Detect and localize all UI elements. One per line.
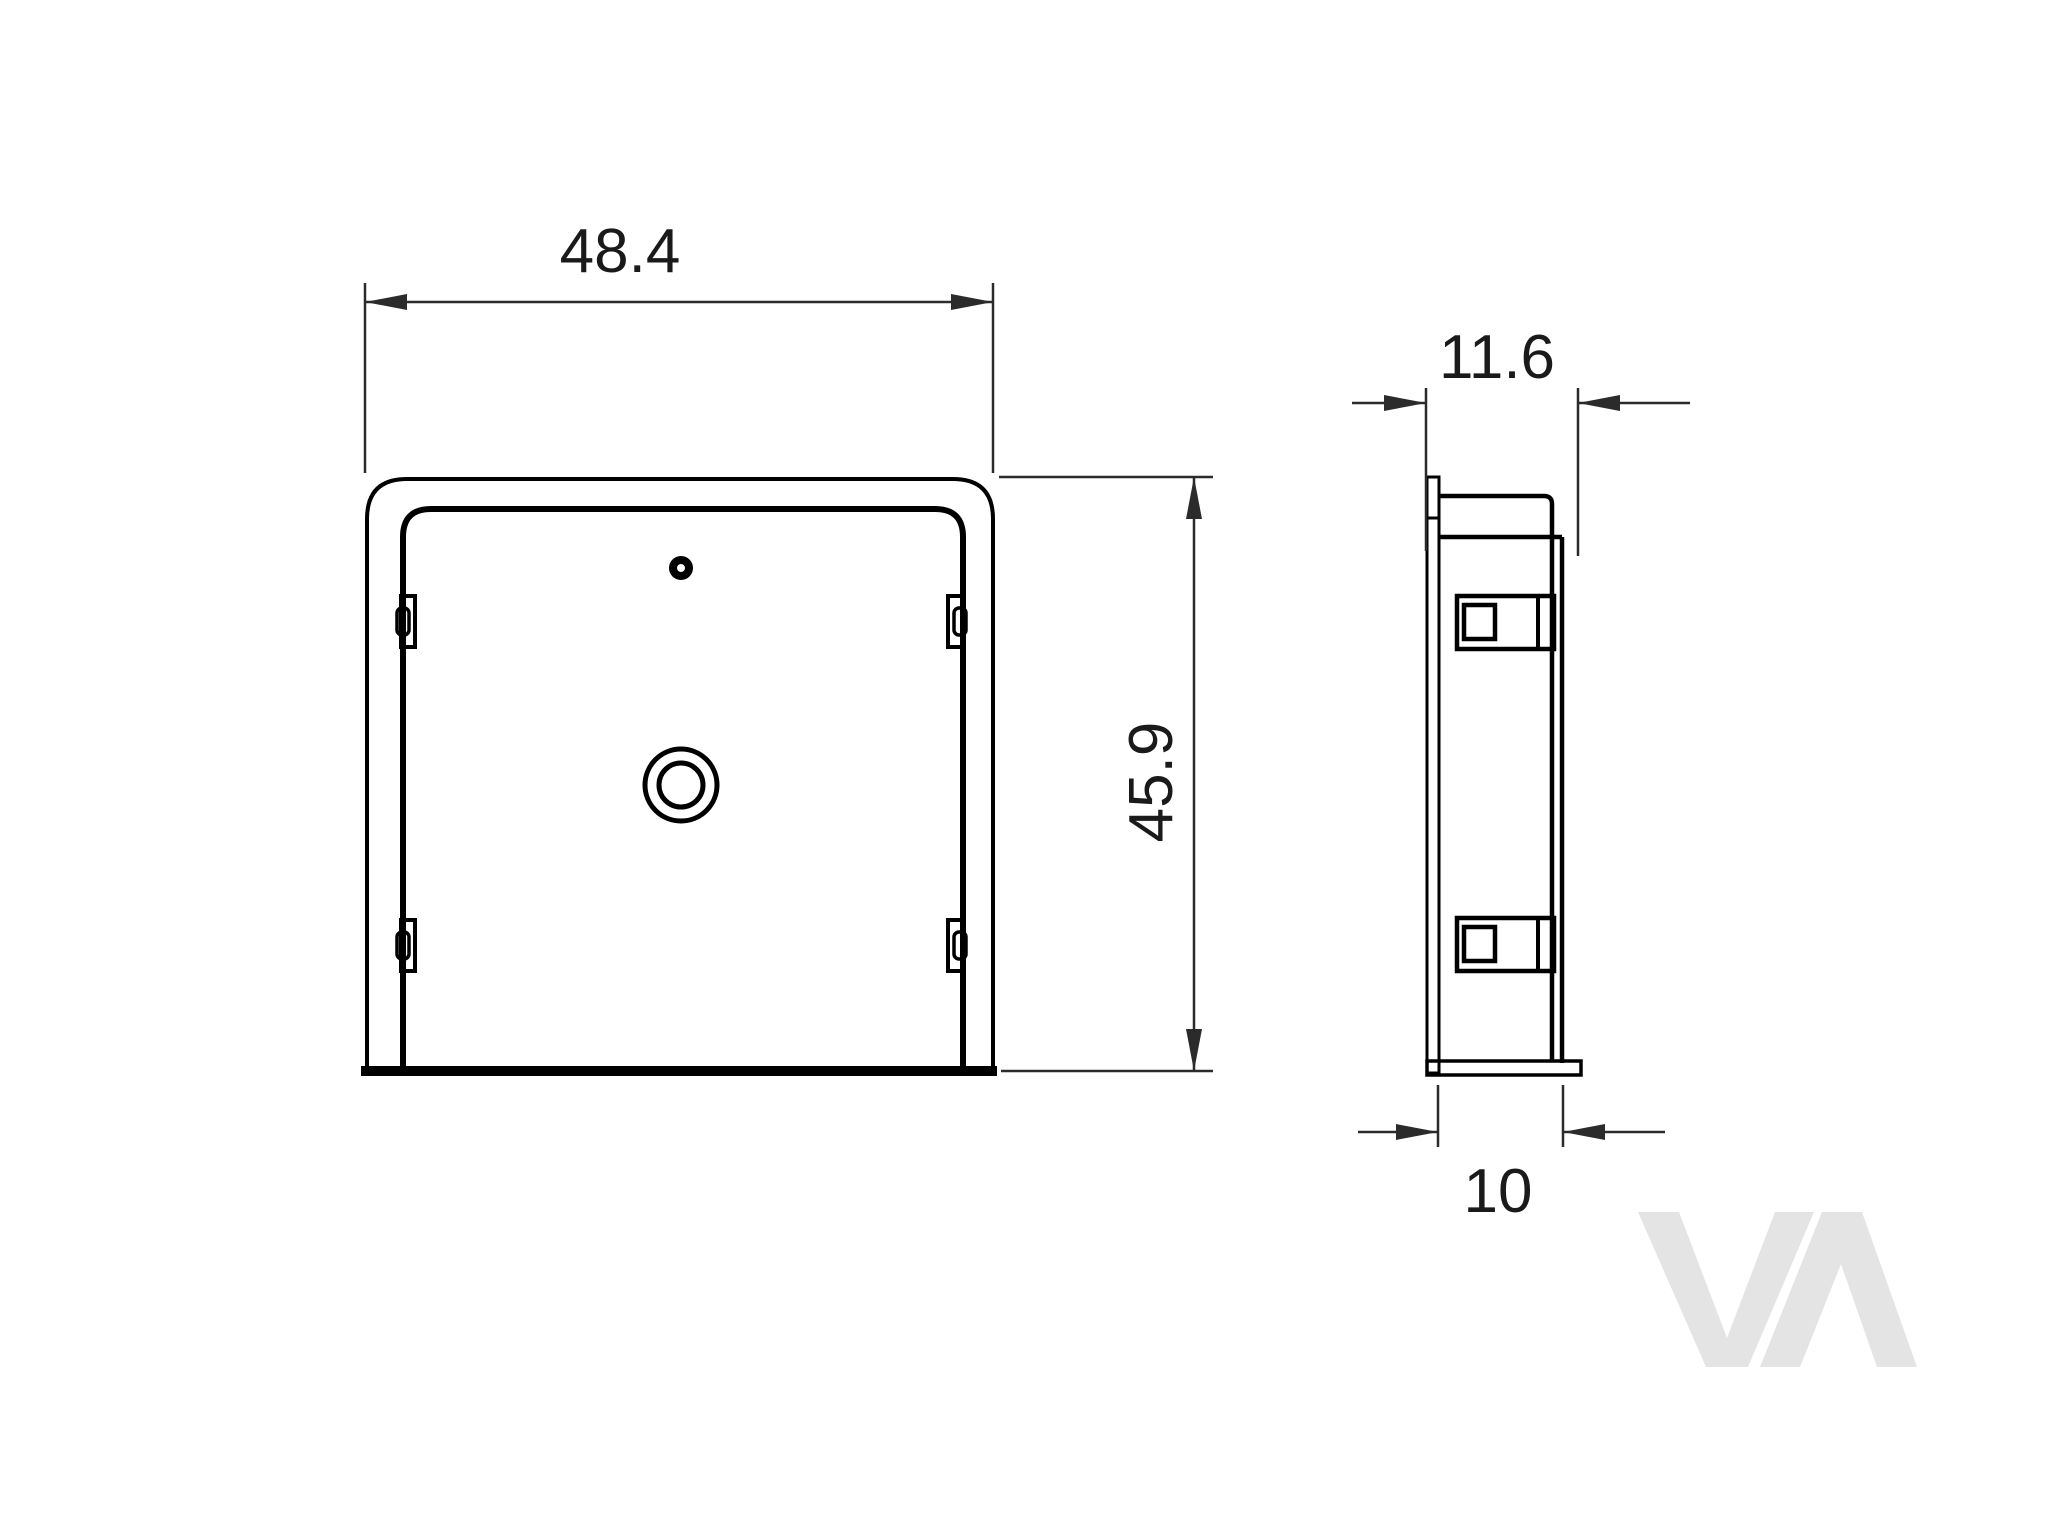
body-depth-dim-label: 10 [1464,1157,1533,1226]
center-boss-outer [645,749,717,821]
height-dim-label: 45.9 [1117,722,1186,843]
side-flange [1427,477,1439,1073]
watermark [1638,1212,1917,1367]
height-arrow-top [1186,477,1202,519]
front-view [361,479,997,1071]
dimension-lines [365,283,1690,1147]
overall-depth-dim-label: 11.6 [1439,323,1555,392]
body-depth-arrow-right [1563,1124,1605,1140]
technical-drawing: 48.4 45.9 11.6 10 [0,0,2048,1536]
pilot-hole [673,560,689,576]
side-foot [1427,1061,1581,1075]
side-body [1439,496,1552,1062]
depth-arrow-left [1384,395,1426,411]
hood-outline [367,479,993,1069]
side-clip-upper-window [1464,605,1495,639]
body-depth-arrow-left [1396,1124,1438,1140]
width-arrow-right [951,294,993,310]
depth-arrow-right [1578,395,1620,411]
width-arrow-left [365,294,407,310]
width-dim-label: 48.4 [560,217,681,286]
door-outline [403,509,963,1067]
height-arrow-bottom [1186,1029,1202,1071]
side-view [1427,477,1581,1075]
drawing-canvas: 48.4 45.9 11.6 10 [0,0,2048,1536]
center-boss-inner [659,763,703,807]
side-clip-lower-window [1464,927,1495,961]
